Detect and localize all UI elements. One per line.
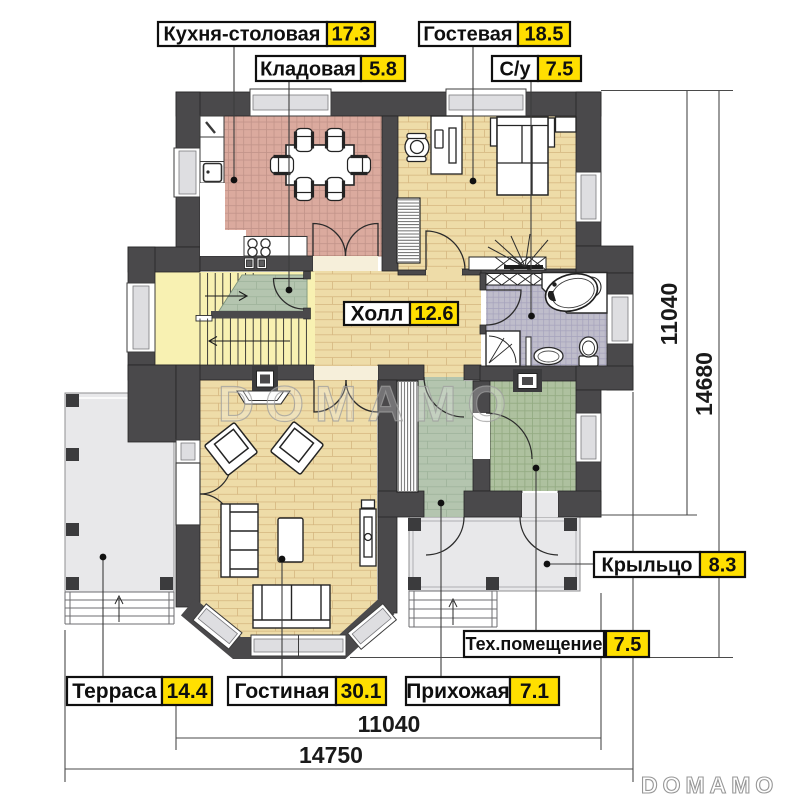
- svg-text:14750: 14750: [299, 742, 363, 768]
- svg-text:Прихожая: Прихожая: [406, 680, 510, 703]
- svg-text:С/у: С/у: [499, 59, 531, 81]
- svg-text:Тех.помещение: Тех.помещение: [466, 634, 603, 654]
- svg-text:Терраса: Терраса: [72, 680, 157, 703]
- svg-text:5.8: 5.8: [369, 59, 397, 81]
- svg-text:7.1: 7.1: [520, 680, 550, 703]
- svg-text:8.3: 8.3: [709, 555, 737, 577]
- svg-text:Крыльцо: Крыльцо: [601, 555, 692, 577]
- svg-text:7.5: 7.5: [614, 634, 642, 656]
- svg-text:7.5: 7.5: [546, 59, 574, 81]
- svg-text:14680: 14680: [691, 352, 717, 416]
- svg-text:DOMAMO: DOMAMO: [641, 772, 778, 798]
- svg-text:11040: 11040: [656, 283, 682, 346]
- svg-text:30.1: 30.1: [341, 680, 382, 703]
- svg-text:Гостиная: Гостиная: [235, 680, 330, 703]
- svg-text:Кладовая: Кладовая: [260, 59, 356, 81]
- svg-text:DOMAMO: DOMAMO: [218, 376, 517, 432]
- svg-text:Холл: Холл: [351, 303, 404, 326]
- svg-text:Кухня-столовая: Кухня-столовая: [164, 24, 321, 46]
- svg-text:11040: 11040: [358, 711, 421, 737]
- svg-text:12.6: 12.6: [415, 303, 454, 325]
- svg-text:18.5: 18.5: [525, 24, 564, 46]
- svg-text:14.4: 14.4: [167, 680, 208, 703]
- svg-text:Гостевая: Гостевая: [423, 24, 512, 46]
- svg-text:17.3: 17.3: [332, 24, 371, 46]
